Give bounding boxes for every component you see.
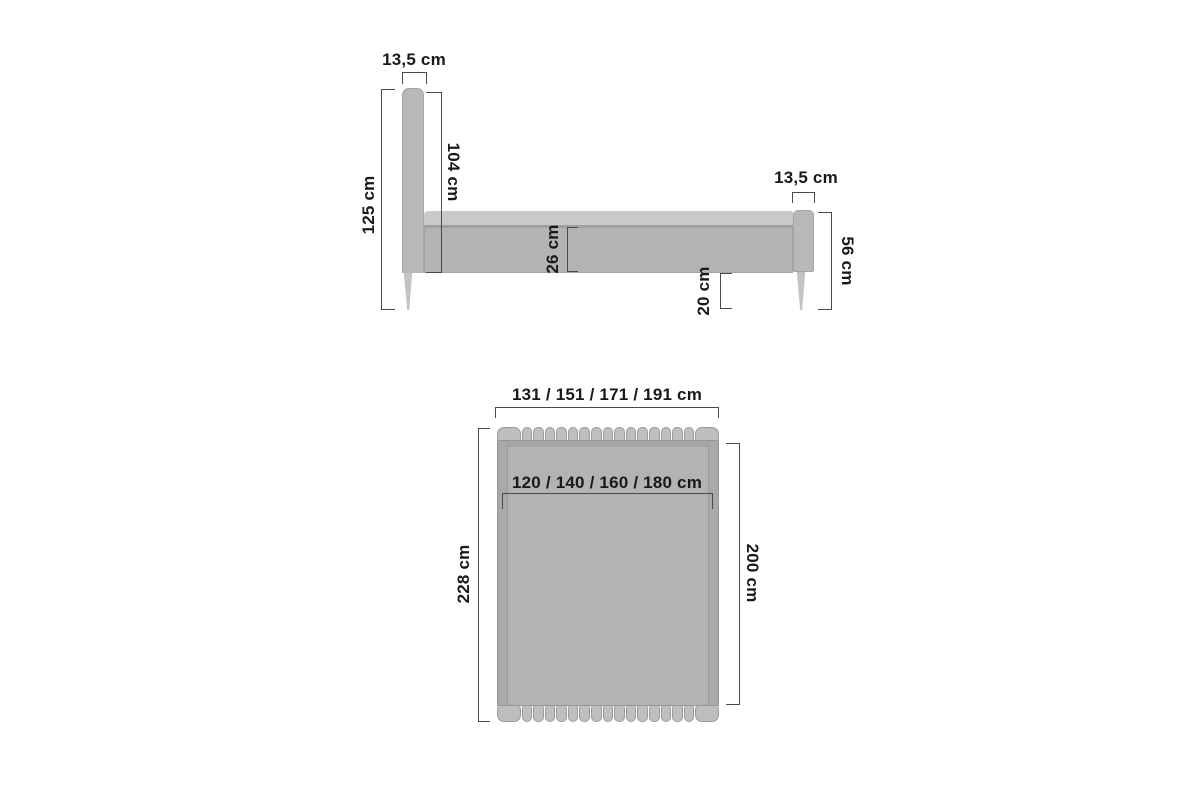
dim-bracket-headboard-panel-height	[426, 92, 442, 273]
headboard-side-profile	[402, 88, 424, 273]
dim-bracket-floor-clearance	[720, 273, 732, 309]
dim-bracket-overall-height	[381, 89, 395, 310]
front-leg	[403, 273, 413, 310]
rear-leg	[796, 272, 806, 310]
mattress-side-profile	[424, 211, 793, 228]
dim-bracket-overall-widths	[495, 407, 719, 418]
dim-bracket-mattress-widths	[502, 493, 713, 509]
dim-overall-widths: 131 / 151 / 171 / 191 cm	[512, 385, 702, 405]
headboard-shadow	[498, 441, 718, 447]
dim-mattress-widths: 120 / 140 / 160 / 180 cm	[512, 473, 702, 493]
dim-floor-clearance: 20 cm	[694, 266, 714, 315]
dim-bracket-mattress-length	[726, 443, 740, 705]
dim-headboard-width: 13,5 cm	[382, 50, 446, 70]
dim-bracket-frame-side-height	[567, 227, 578, 272]
dim-footboard-width: 13,5 cm	[774, 168, 838, 188]
side-rail-left	[498, 441, 508, 705]
dim-overall-length: 228 cm	[454, 545, 474, 604]
side-rail-right	[708, 441, 718, 705]
dim-bracket-overall-length	[478, 428, 490, 722]
bed-dimensions-diagram: 13,5 cm 125 cm 104 cm 26 cm 20 cm 13,5 c…	[0, 0, 1200, 800]
dim-bracket-headboard-width	[402, 72, 427, 84]
dim-mattress-length: 200 cm	[742, 544, 762, 603]
dim-footboard-height: 56 cm	[837, 236, 857, 285]
dim-bracket-footboard-width	[792, 192, 815, 203]
dim-overall-height: 125 cm	[359, 176, 379, 235]
footboard-side-profile	[793, 210, 814, 272]
dim-headboard-panel-height: 104 cm	[443, 143, 463, 202]
frame-side-rail	[424, 228, 793, 273]
dim-bracket-footboard-height	[818, 212, 832, 310]
dim-frame-side-height: 26 cm	[543, 224, 563, 273]
